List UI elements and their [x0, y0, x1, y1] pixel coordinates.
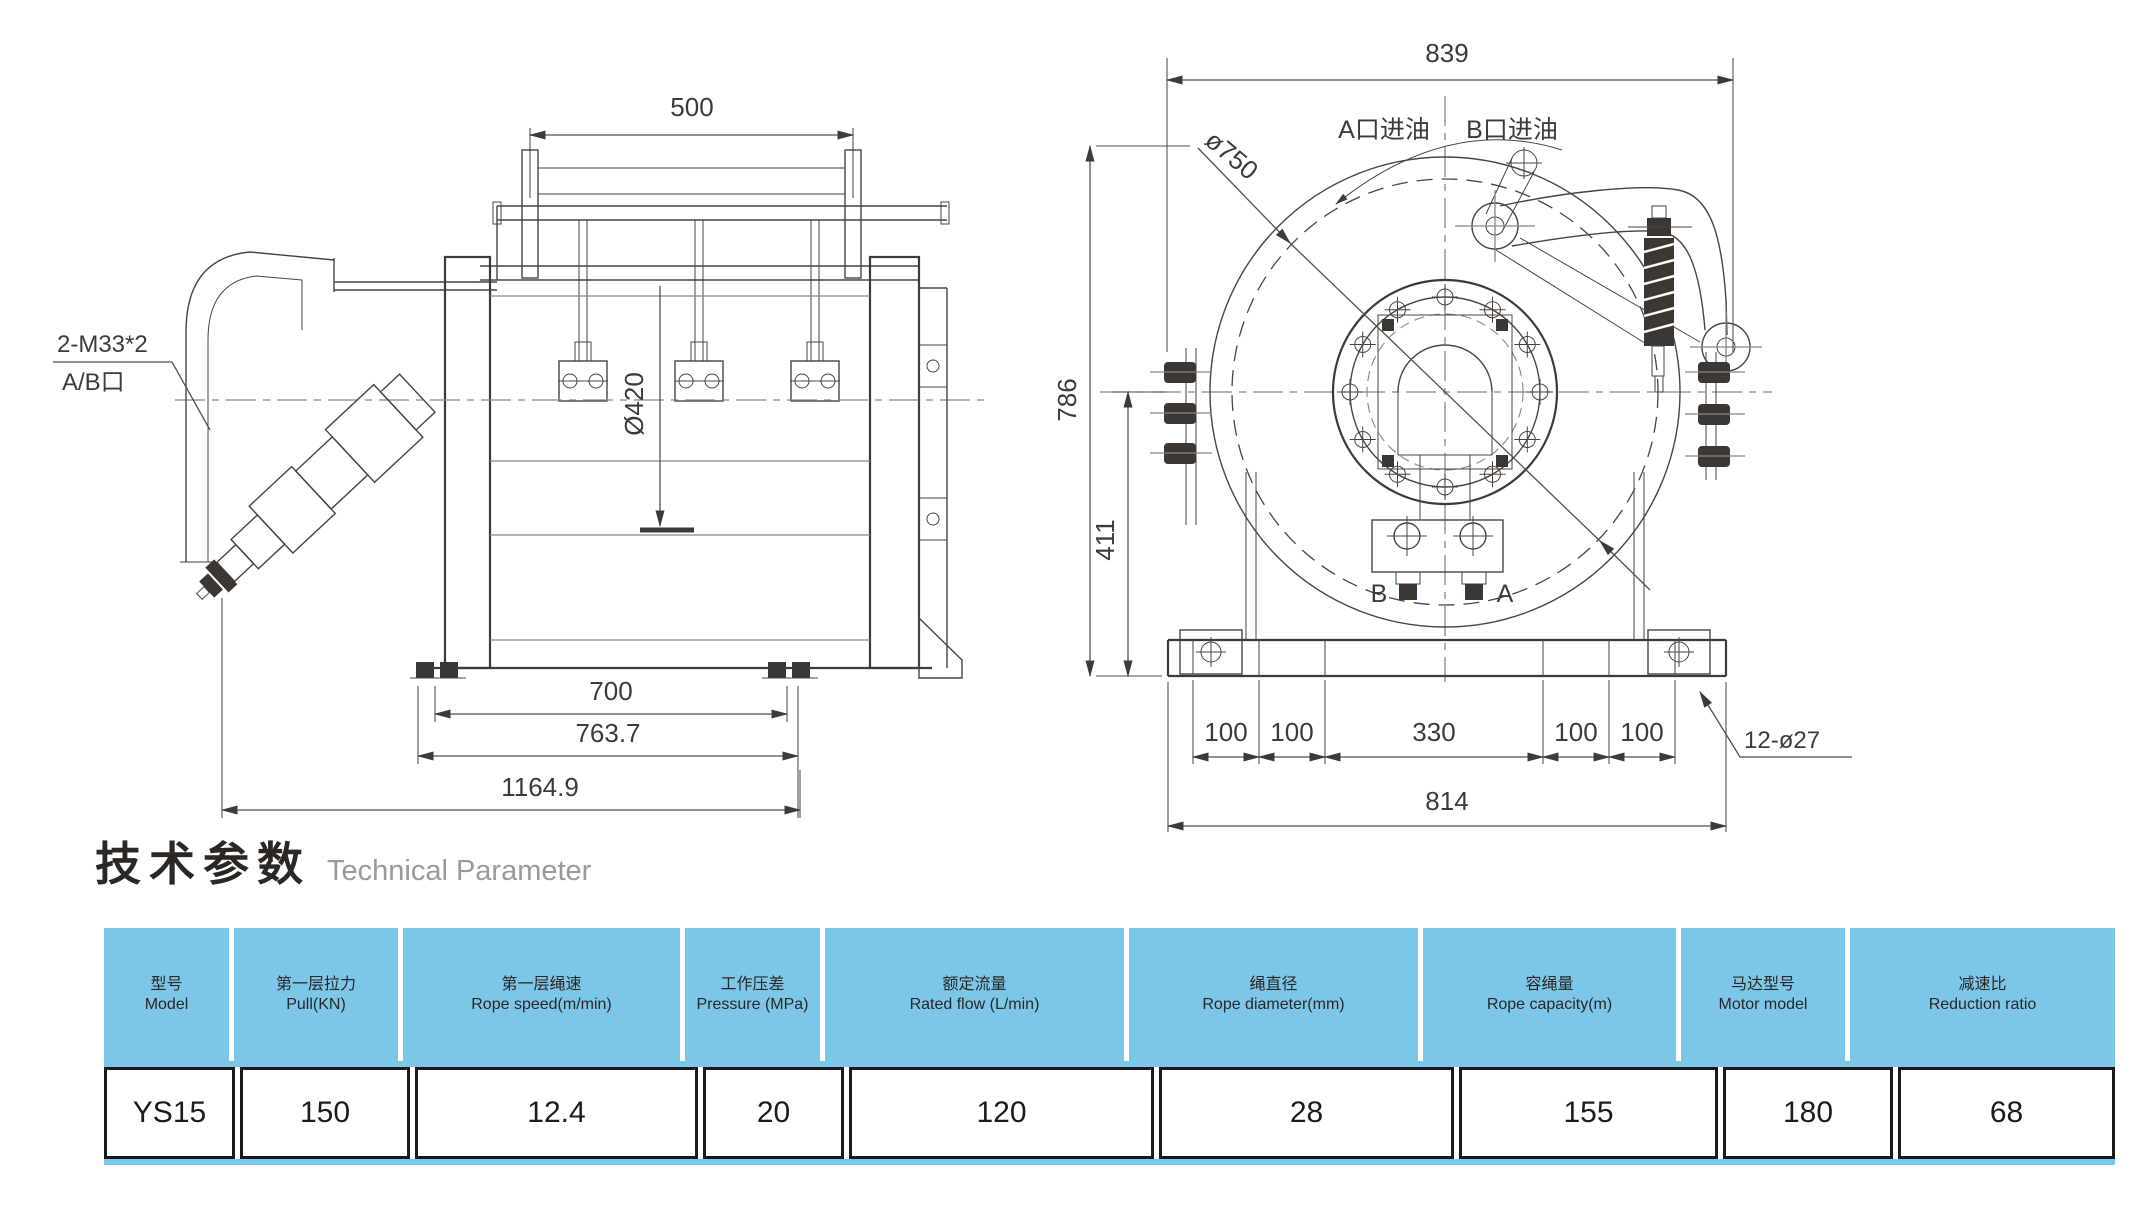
header-label-en: Rope capacity(m): [1487, 995, 1612, 1015]
dim-814-label: 814: [1425, 786, 1468, 816]
port-a-inlet-label: A口进油: [1338, 116, 1430, 144]
dim-100-label: 100: [1620, 717, 1663, 747]
header-label-en: Reduction ratio: [1929, 995, 2037, 1015]
table-header-cell: 绳直径Rope diameter(mm): [1129, 928, 1418, 1061]
valve-port-a-label: A: [1497, 580, 1514, 608]
port-callout-line2: A/B口: [62, 369, 125, 396]
dim-839-label: 839: [1425, 38, 1468, 68]
table-header-cell: 容绳量Rope capacity(m): [1423, 928, 1676, 1061]
dim-411-label: 411: [1090, 519, 1120, 560]
section-title-zh: 技术参数: [95, 828, 311, 894]
dim-330-label: 330: [1412, 717, 1455, 747]
rope-clamps: [558, 220, 840, 401]
table-value-cell: 155: [1459, 1067, 1718, 1159]
dim-763-label: 763.7: [575, 718, 640, 748]
dim-top-width: 500: [530, 92, 853, 198]
valve-port-b-label: B: [1371, 580, 1388, 608]
dim-1164-label: 1164.9: [501, 772, 579, 802]
port-b-inlet-label: B口进油: [1466, 116, 1558, 144]
parameter-table: 型号Model第一层拉力Pull(KN)第一层绳速Rope speed(m/mi…: [104, 928, 2115, 1165]
centerlines: [1100, 96, 1772, 682]
table-value-cell: 28: [1159, 1067, 1454, 1159]
side-rollers: [1150, 348, 1745, 525]
section-title: 技术参数 Technical Parameter: [95, 828, 591, 894]
base-hole-dims: 100 100 330 100 100: [1193, 680, 1675, 764]
table-value-cell: 120: [849, 1067, 1154, 1159]
header-label-zh: 工作压差: [720, 975, 784, 995]
table-header-cell: 第一层绳速Rope speed(m/min): [403, 928, 680, 1061]
left-bottom-dims: 700 763.7 1164.9: [222, 598, 800, 818]
header-label-en: Motor model: [1719, 995, 1808, 1015]
header-label-zh: 第一层拉力: [276, 975, 356, 995]
header-label-zh: 第一层绳速: [501, 975, 581, 995]
dim-100-label: 100: [1270, 717, 1313, 747]
table-header-row: 型号Model第一层拉力Pull(KN)第一层绳速Rope speed(m/mi…: [104, 928, 2115, 1061]
dim-center-height: 411: [1090, 392, 1165, 676]
header-label-zh: 型号: [150, 975, 182, 995]
table-value-cell: 12.4: [415, 1067, 698, 1159]
dim-420-label: Ø420: [619, 372, 649, 436]
header-label-en: Rope diameter(mm): [1202, 995, 1344, 1015]
dim-500-label: 500: [670, 92, 713, 122]
header-label-en: Rated flow (L/min): [910, 995, 1040, 1015]
page: 500: [0, 0, 2152, 1229]
right-view-drawing: B A: [1052, 38, 1852, 832]
holes-label: 12-ø27: [1744, 727, 1820, 754]
technical-drawing: 500: [0, 0, 2152, 862]
table-value-cell: 150: [240, 1067, 410, 1159]
table-header-cell: 马达型号Motor model: [1681, 928, 1845, 1061]
header-label-zh: 额定流量: [942, 975, 1006, 995]
table-header-cell: 型号Model: [104, 928, 229, 1061]
header-label-en: Rope speed(m/min): [471, 995, 612, 1015]
table-value-cell: 68: [1898, 1067, 2115, 1159]
valve-block: B A: [1371, 516, 1514, 608]
port-callout-line1: 2-M33*2: [57, 331, 148, 358]
header-label-en: Model: [145, 995, 189, 1015]
table-value-cell: YS15: [104, 1067, 235, 1159]
table-value-cell: 20: [703, 1067, 844, 1159]
header-label-zh: 容绳量: [1525, 975, 1573, 995]
section-title-en: Technical Parameter: [327, 855, 591, 888]
dim-700-label: 700: [589, 676, 632, 706]
dim-750-label: ø750: [1199, 125, 1264, 186]
table-header-cell: 额定流量Rated flow (L/min): [825, 928, 1124, 1061]
hydraulic-motor: [175, 367, 442, 623]
header-label-zh: 绳直径: [1249, 975, 1297, 995]
dim-drum-diameter: Ø420: [619, 286, 694, 530]
table-value-cell: 180: [1723, 1067, 1893, 1159]
table-data-row: YS1515012.4201202815518068: [104, 1061, 2115, 1165]
header-label-zh: 马达型号: [1731, 975, 1795, 995]
table-header-cell: 第一层拉力Pull(KN): [234, 928, 398, 1061]
table-header-cell: 减速比Reduction ratio: [1850, 928, 2115, 1061]
header-label-en: Pressure (MPa): [696, 995, 808, 1015]
dim-100-label: 100: [1204, 717, 1247, 747]
dim-786-label: 786: [1052, 378, 1082, 421]
header-label-en: Pull(KN): [286, 995, 346, 1015]
dim-100-label: 100: [1554, 717, 1597, 747]
left-view-drawing: 500: [53, 92, 985, 818]
header-label-zh: 减速比: [1958, 975, 2006, 995]
holes-callout: 12-ø27: [1700, 692, 1852, 757]
table-header-cell: 工作压差Pressure (MPa): [685, 928, 820, 1061]
